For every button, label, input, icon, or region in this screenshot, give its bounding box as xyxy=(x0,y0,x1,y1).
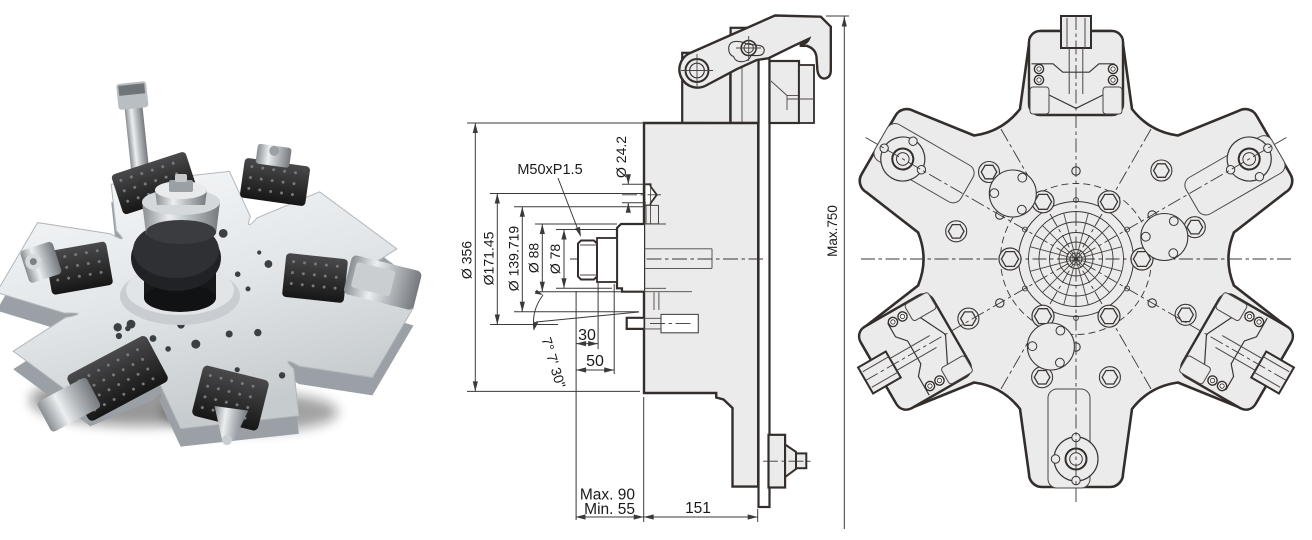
svg-text:Max.750: Max.750 xyxy=(825,205,840,257)
svg-text:50: 50 xyxy=(586,353,604,370)
svg-text:Ø171.45: Ø171.45 xyxy=(480,231,496,285)
svg-text:Ø 139.719: Ø 139.719 xyxy=(505,226,521,292)
svg-text:Ø 356: Ø 356 xyxy=(458,241,474,279)
svg-text:M50xP1.5: M50xP1.5 xyxy=(517,162,582,178)
svg-text:Ø 24.2: Ø 24.2 xyxy=(613,136,629,178)
svg-text:151: 151 xyxy=(685,500,711,517)
svg-text:Ø 88: Ø 88 xyxy=(525,243,541,274)
svg-text:Min. 55: Min. 55 xyxy=(584,501,635,518)
svg-text:Ø 78: Ø 78 xyxy=(547,244,563,275)
svg-text:30: 30 xyxy=(578,327,596,344)
